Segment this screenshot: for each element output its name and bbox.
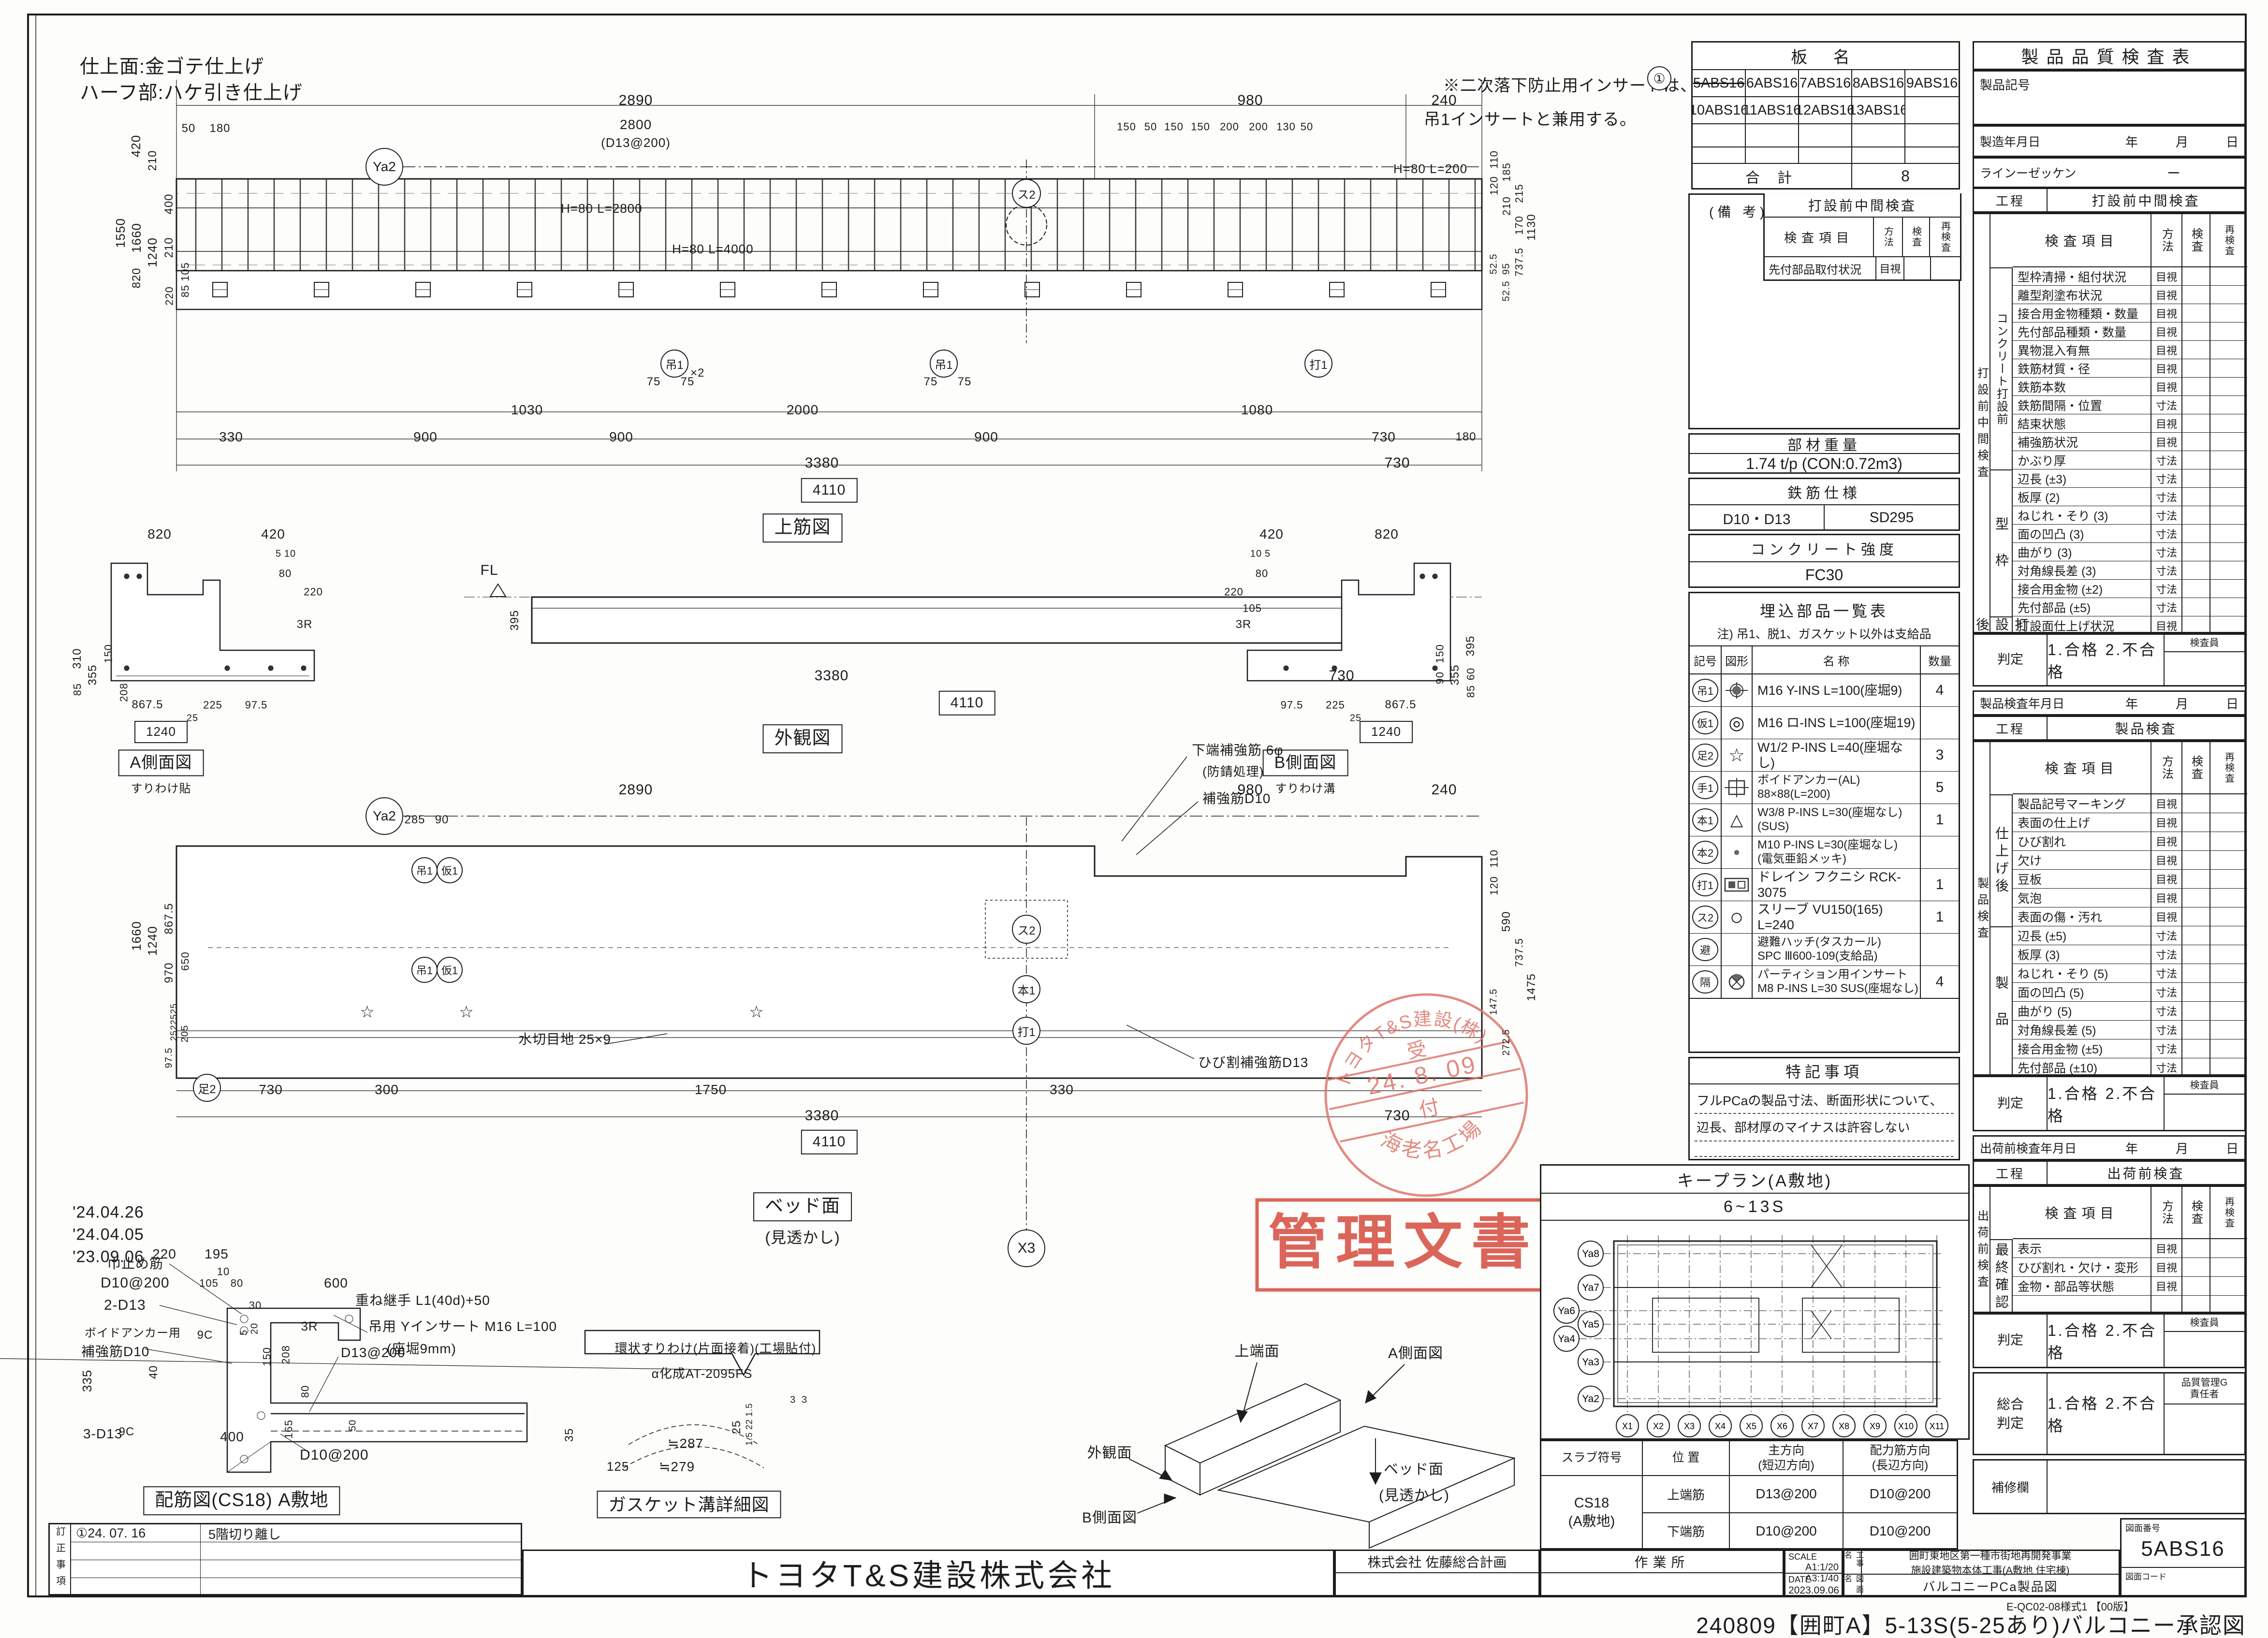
embedded-part-row: 仮1◎M16 ロ-INS L=100(座堀19): [1690, 707, 1959, 739]
embedded-part-row: 足2☆W1/2 P-INS L=40(座堀なし)3: [1690, 739, 1959, 772]
drawing-name-label: 図面名: [1844, 1575, 1862, 1597]
worksite-cell: 作業所: [1540, 1550, 1784, 1596]
panel-name-cell: [1852, 147, 1905, 164]
process-row: 工程製品検査: [1973, 716, 2246, 741]
drawing-no-label: 図面番号: [2125, 1521, 2240, 1534]
panel-name-cell: [1799, 124, 1852, 147]
rebar-spec-table: 鉄筋仕様D10・D13SD295: [1688, 478, 1960, 531]
verdict-row: 判定 1.合格 2.不合格 検査員: [1973, 1313, 2246, 1368]
line-row: ラインーゼッケンー: [1973, 157, 2246, 188]
drawing-no: 5ABS16: [2125, 1537, 2240, 1561]
pre-pour-inspection: 打設前中間検査コンクリート打設前型 枠打設後検査項目方法検査再検査型枠清掃・組付…: [1973, 213, 2246, 633]
panel-name-cell: [1905, 124, 1959, 147]
svg-text:X2: X2: [1653, 1421, 1664, 1431]
embedded-part-row: 隔パーティション用インサートM8 P-INS L=30 SUS(座堀なし)4: [1690, 966, 1959, 999]
section-a: [111, 563, 314, 681]
embedded-parts-table: 埋込部品一覧表注) 吊1、脱1、ガスケット以外は支給品記号図形名 称数量吊1M1…: [1688, 592, 1960, 1053]
revision-table: 訂正事項①24. 07. 165階切り離し: [48, 1523, 522, 1595]
svg-text:X6: X6: [1777, 1421, 1787, 1431]
contractor-cell: トヨタT&S建設株式会社: [522, 1550, 1334, 1596]
designer-name: 株式会社 佐藤総合計画: [1368, 1552, 1507, 1571]
verdict-row: 判定 1.合格 2.不合格 検査員: [1973, 633, 2246, 687]
embedded-part-row: 吊1M16 Y-INS L=100(座堀9)4: [1690, 674, 1959, 707]
scale-label: SCALE: [1788, 1552, 1839, 1562]
project-label: 工事名: [1844, 1551, 1862, 1574]
drawing-name: バルコニーPCa製品図: [1922, 1577, 2058, 1595]
svg-text:X1: X1: [1622, 1421, 1633, 1431]
project-cell: 工事名 囲町東地区第一種市街地再開発事業 施設建築物本体工事(A敷地 住宅棟) …: [1843, 1550, 2120, 1596]
embedded-part-row: 打1ドレイン フクニシ RCK-30751: [1690, 869, 1959, 901]
scale-a1: A1:1/20: [1805, 1562, 1839, 1573]
embedded-part-row: 本2●M10 P-INS L=30(座堀なし)(電気亜鉛メッキ): [1690, 836, 1959, 869]
embedded-part-row: ス2○スリーブ VU150(165) L=2401: [1690, 901, 1959, 934]
panel-name-cell: 13ABS16: [1852, 97, 1905, 124]
embedded-part-row: 手1ボイドアンカー(AL)88×88(L=200)5: [1690, 772, 1959, 804]
isometric-view: [1129, 1362, 1514, 1548]
date-value: 2023.09.06: [1788, 1585, 1839, 1596]
rebar-section: [145, 1264, 527, 1472]
svg-text:X3: X3: [1684, 1421, 1695, 1431]
svg-text:Ya7: Ya7: [1582, 1282, 1599, 1293]
bed-view: [176, 757, 1482, 1230]
scale-date-cell: SCALE A1:1/20 A3:1/40 DATE 2023.09.06: [1784, 1550, 1843, 1596]
svg-text:X8: X8: [1839, 1421, 1849, 1431]
keyplan: キープラン(A敷地)6~13S Ya8 Ya7 Ya6 Ya5 Ya4 Ya3 …: [1540, 1164, 1970, 1440]
concrete-strength-table: コンクリート強度FC30: [1688, 534, 1960, 588]
pre-shipment-inspection: 出荷前検査最終確認検査項目方法検査再検査表示 目視 ひび割れ・欠け・変形 目視 …: [1973, 1185, 2246, 1313]
product-inspection: 製品検査仕上げ後製 品検査項目方法検査再検査製品記号マーキング 目視 表面の仕上…: [1973, 741, 2246, 1076]
panel-name-cell: [1905, 147, 1959, 164]
product-code-row: 製品記号: [1973, 70, 2246, 125]
panel-name-cell: [1746, 147, 1799, 164]
contractor-name: トヨタT&S建設株式会社: [742, 1551, 1115, 1595]
gasket-detail: [0, 1331, 819, 1468]
inspection-date-row: 製品検査年月日 年月日: [1973, 690, 2246, 716]
panel-name-cell: 12ABS16: [1799, 97, 1852, 124]
designer-cell: 株式会社 佐藤総合計画: [1334, 1550, 1540, 1596]
verdict-row: 判定 1.合格 2.不合格 検査員: [1973, 1076, 2246, 1131]
panel-name-cell: [1746, 124, 1799, 147]
panel-name-cell: 8ABS16: [1852, 70, 1905, 97]
svg-text:X9: X9: [1870, 1421, 1880, 1431]
panel-name-cell: 6ABS16: [1746, 70, 1799, 97]
panel-name-cell: [1799, 147, 1852, 164]
drawing-number-cell: 図面番号 5ABS16 図面コード: [2120, 1518, 2246, 1596]
process-row: 工程打設前中間検査: [1973, 188, 2246, 213]
svg-text:Ya5: Ya5: [1582, 1319, 1599, 1330]
svg-text:付: 付: [1417, 1096, 1441, 1122]
drawing-sheet: { "colors":{"line":"#1d1d1d","stamp_red"…: [0, 0, 2268, 1638]
embedded-part-row: 本1△W3/8 P-INS L=30(座堀なし)(SUS)1: [1690, 804, 1959, 836]
mfg-date-row: 製造年月日 年月日: [1973, 125, 2246, 157]
svg-text:Ya3: Ya3: [1582, 1357, 1599, 1368]
elevation-view: [464, 584, 1482, 643]
panel-name-cell: [1693, 147, 1746, 164]
svg-text:管理文書: 管理文書: [1268, 1207, 1539, 1277]
drawing-code-label: 図面コード: [2125, 1570, 2240, 1582]
panel-name-cell: [1905, 97, 1959, 124]
process-row: 工程出荷前検査: [1973, 1160, 2246, 1185]
svg-text:Ya2: Ya2: [1582, 1393, 1599, 1404]
approval-title: 240809【囲町A】5-13S(5-25あり)バルコニー承認図: [1383, 1608, 2246, 1638]
panel-name-cell: 10ABS16: [1693, 97, 1746, 124]
inspection-date-row: 出荷前検査年月日 年月日: [1973, 1135, 2246, 1160]
slab-table: スラブ符号位 置主方向(短辺方向)配力筋方向(長辺方向)CS18(A敷地)上端筋…: [1540, 1440, 1958, 1550]
panel-name-cell: [1693, 124, 1746, 147]
panel-name-cell: 5ABS16: [1693, 70, 1746, 97]
quality-title: 製品品質検査表: [1973, 41, 2246, 70]
svg-text:Ya6: Ya6: [1558, 1305, 1575, 1316]
embedded-part-row: 避避難ハッチ(タスカール)SPC Ⅲ600-109(支給品): [1690, 934, 1959, 966]
worksite-label: 作業所: [1634, 1552, 1689, 1571]
panel-name-cell: 7ABS16: [1799, 70, 1852, 97]
panel-name-cell: 11ABS16: [1746, 97, 1799, 124]
svg-text:X4: X4: [1715, 1421, 1726, 1431]
panel-names-table: 板 名5ABS166ABS167ABS168ABS169ABS1610ABS16…: [1691, 41, 1960, 190]
repair-row: 補修欄: [1973, 1459, 2246, 1514]
kanri-stamp: 管理文書: [1257, 1200, 1550, 1290]
member-weight-table: 部材重量1.74 t/p (CON:0.72m3): [1688, 433, 1960, 474]
svg-text:Ya8: Ya8: [1582, 1248, 1599, 1259]
panel-name-cell: 9ABS16: [1905, 70, 1959, 97]
svg-text:X10: X10: [1898, 1421, 1914, 1431]
plan-top-view: [176, 80, 1482, 471]
panel-name-cell: [1852, 124, 1905, 147]
svg-text:X5: X5: [1746, 1421, 1756, 1431]
remarks-table: (備 考)打設前中間検査検査項目方法検査再検査先付部品取付状況目視: [1688, 193, 1960, 429]
overall-verdict-row: 総合判定 1.合格 2.不合格 品質管理G責任者: [1973, 1372, 2246, 1455]
svg-text:Ya4: Ya4: [1558, 1333, 1575, 1345]
project-line1: 囲町東地区第一種市街地再開発事業: [1909, 1548, 2072, 1563]
svg-text:X7: X7: [1808, 1421, 1818, 1431]
special-notes: 特記事項フルPCaの製品寸法、断面形状について、辺長、部材厚のマイナスは許容しな…: [1688, 1057, 1960, 1160]
svg-text:X11: X11: [1930, 1421, 1945, 1431]
